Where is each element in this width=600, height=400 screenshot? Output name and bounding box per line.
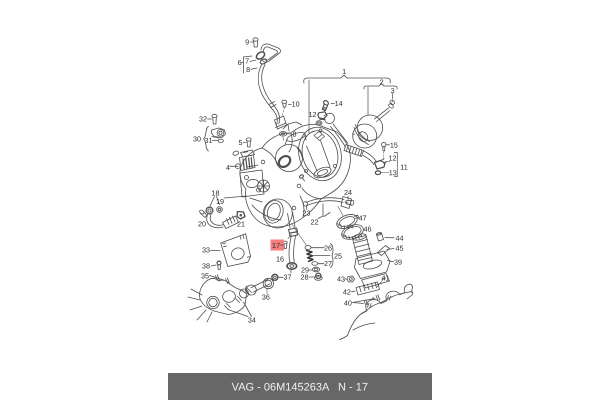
- svg-text:12: 12: [389, 154, 397, 163]
- svg-text:36: 36: [262, 292, 270, 301]
- svg-text:39: 39: [394, 258, 402, 267]
- svg-text:27: 27: [324, 259, 332, 268]
- svg-text:10: 10: [292, 99, 300, 108]
- svg-text:4: 4: [226, 163, 230, 172]
- svg-text:45: 45: [395, 244, 403, 253]
- svg-text:2: 2: [380, 78, 384, 87]
- svg-text:17: 17: [272, 241, 280, 250]
- svg-text:26: 26: [324, 244, 332, 253]
- svg-text:43: 43: [337, 275, 345, 284]
- svg-text:12: 12: [309, 110, 317, 119]
- svg-text:9: 9: [245, 37, 249, 46]
- svg-text:38: 38: [202, 261, 210, 270]
- svg-text:16: 16: [276, 254, 284, 263]
- svg-text:23: 23: [302, 209, 310, 218]
- svg-text:11: 11: [400, 163, 407, 172]
- svg-text:35: 35: [201, 271, 209, 280]
- svg-text:8: 8: [246, 65, 250, 74]
- svg-text:VAG - 06M145263A: VAG - 06M145263A: [232, 381, 330, 393]
- svg-text:29: 29: [301, 266, 309, 275]
- svg-text:46: 46: [363, 225, 371, 234]
- svg-text:30: 30: [193, 134, 201, 143]
- svg-text:40: 40: [344, 299, 352, 308]
- svg-text:31: 31: [205, 136, 213, 145]
- svg-text:8: 8: [293, 129, 297, 138]
- svg-text:33: 33: [202, 245, 210, 254]
- svg-text:13: 13: [389, 168, 397, 177]
- svg-text:1: 1: [342, 67, 346, 76]
- svg-text:22: 22: [310, 218, 318, 227]
- svg-text:24: 24: [344, 188, 352, 197]
- svg-text:37: 37: [283, 272, 291, 281]
- svg-text:32: 32: [199, 114, 207, 123]
- svg-text:21: 21: [237, 219, 245, 228]
- svg-text:14: 14: [335, 99, 343, 108]
- svg-text:5: 5: [239, 138, 243, 147]
- svg-text:19: 19: [216, 197, 224, 206]
- svg-text:34: 34: [248, 315, 256, 324]
- svg-text:6: 6: [238, 58, 242, 67]
- svg-text:N - 17: N - 17: [338, 381, 368, 393]
- svg-text:20: 20: [198, 219, 206, 228]
- svg-text:41: 41: [381, 274, 389, 283]
- svg-text:3: 3: [391, 86, 395, 95]
- svg-text:42: 42: [343, 288, 351, 297]
- svg-text:25: 25: [334, 252, 342, 261]
- svg-text:47: 47: [358, 214, 366, 223]
- svg-text:44: 44: [395, 234, 403, 243]
- svg-text:15: 15: [390, 141, 398, 150]
